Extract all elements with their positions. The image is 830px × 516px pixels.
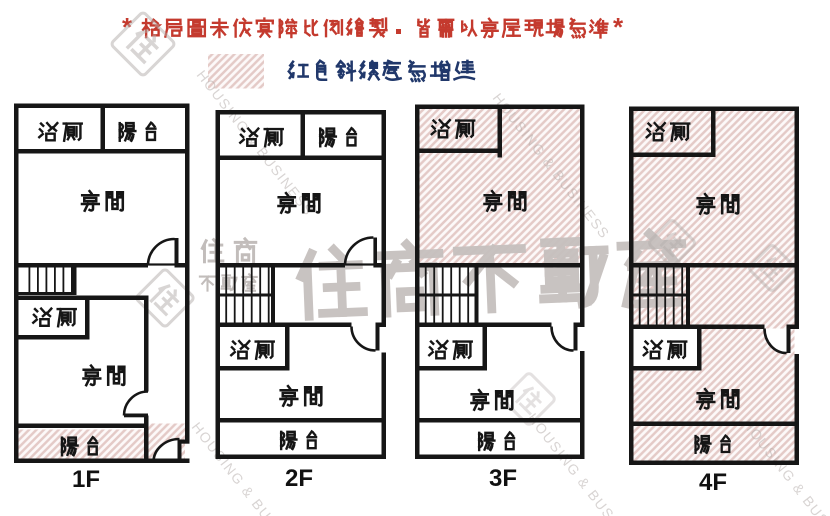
svg-text:2F: 2F	[285, 465, 313, 492]
svg-text:3F: 3F	[489, 465, 517, 492]
svg-text:*: *	[613, 12, 624, 42]
svg-text:1F: 1F	[72, 466, 100, 493]
svg-text:4F: 4F	[699, 469, 727, 496]
